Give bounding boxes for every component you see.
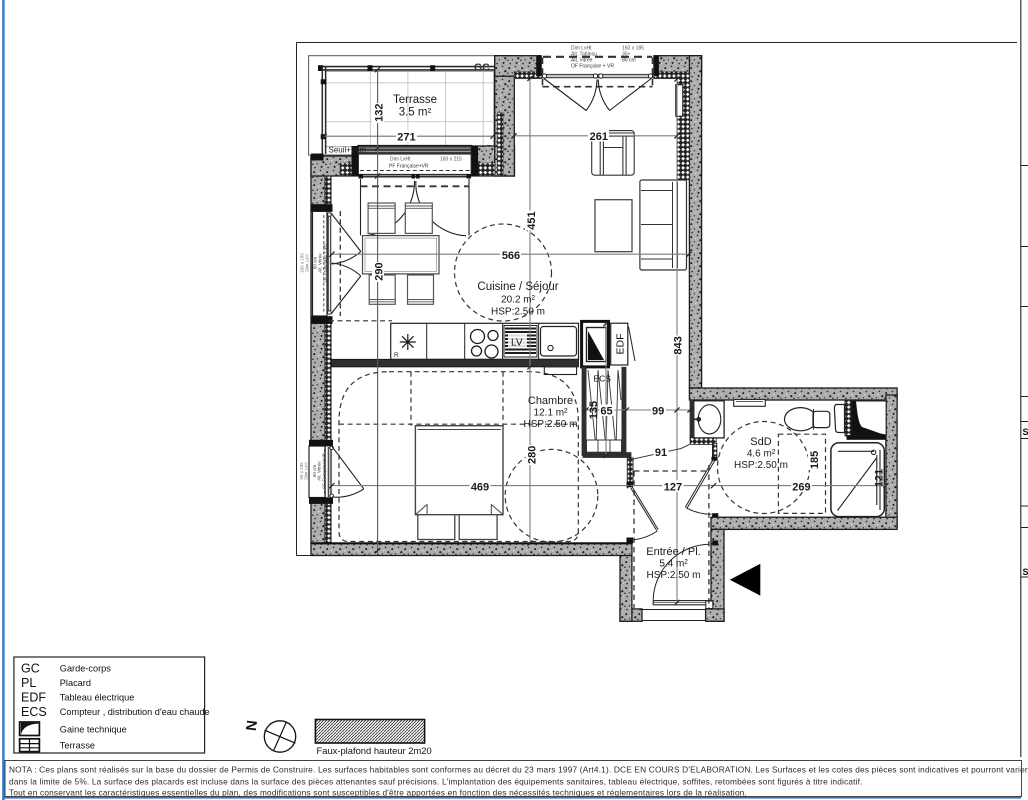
svg-text:843: 843 bbox=[673, 336, 685, 354]
svg-text:135: 135 bbox=[588, 401, 600, 419]
svg-text:127: 127 bbox=[664, 481, 682, 493]
svg-text:269: 269 bbox=[792, 481, 810, 493]
svg-text:R: R bbox=[394, 352, 399, 359]
svg-text:4.6 m²: 4.6 m² bbox=[747, 449, 776, 460]
svg-text:Terrasse: Terrasse bbox=[393, 94, 437, 106]
svg-text:LV: LV bbox=[511, 338, 523, 349]
svg-text:Placard: Placard bbox=[60, 678, 91, 688]
svg-text:469: 469 bbox=[471, 481, 489, 493]
svg-text:OF Française+VR: OF Française+VR bbox=[322, 452, 327, 489]
svg-text:dans la limite de 5%. La surfa: dans la limite de 5%. La surface des pla… bbox=[9, 777, 863, 787]
svg-text:99: 99 bbox=[652, 406, 664, 418]
svg-text:Seuil+2cm: Seuil+2cm bbox=[329, 146, 367, 155]
svg-text:Dim LxHt: Dim LxHt bbox=[390, 157, 411, 163]
svg-text:Dim LxH: Dim LxH bbox=[305, 254, 310, 271]
svg-text:HSP:2.50 m: HSP:2.50 m bbox=[524, 419, 578, 430]
svg-text:132: 132 bbox=[374, 104, 386, 122]
svg-text:280: 280 bbox=[526, 446, 538, 464]
svg-text:Faux-plafond hauteur 2m20: Faux-plafond hauteur 2m20 bbox=[317, 745, 432, 756]
svg-text:271: 271 bbox=[397, 132, 415, 144]
svg-text:566: 566 bbox=[502, 250, 520, 262]
svg-text:80 cm: 80 cm bbox=[622, 58, 636, 64]
svg-text:PF Française+VR: PF Française+VR bbox=[389, 164, 429, 170]
svg-text:20.2 m²: 20.2 m² bbox=[501, 294, 536, 305]
svg-text:HSP:2.50 m: HSP:2.50 m bbox=[647, 570, 701, 581]
svg-text:Chambre: Chambre bbox=[528, 395, 573, 407]
svg-text:GC: GC bbox=[21, 662, 40, 676]
svg-text:Garde-corps: Garde-corps bbox=[60, 664, 111, 674]
svg-text:ECS: ECS bbox=[594, 374, 612, 384]
svg-text:EDF: EDF bbox=[21, 691, 46, 705]
svg-text:S: S bbox=[1023, 427, 1028, 437]
svg-text:451: 451 bbox=[526, 211, 538, 229]
svg-text:OF Française + VR: OF Française + VR bbox=[571, 64, 614, 70]
svg-text:160 x 215: 160 x 215 bbox=[440, 157, 462, 163]
svg-text:185: 185 bbox=[809, 451, 821, 469]
svg-text:12.1 m²: 12.1 m² bbox=[534, 408, 569, 419]
svg-text:PL: PL bbox=[21, 676, 36, 690]
svg-text:Tout en conservant les caracté: Tout en conservant les caractéristiques … bbox=[9, 788, 747, 798]
svg-text:HSP:2.50 m: HSP:2.50 m bbox=[491, 307, 545, 318]
svg-text:Gaine technique: Gaine technique bbox=[60, 725, 127, 735]
svg-text:OF Française + VR: OF Française + VR bbox=[323, 243, 328, 282]
svg-text:261: 261 bbox=[590, 131, 608, 143]
svg-text:Tableau électrique: Tableau électrique bbox=[60, 693, 135, 703]
svg-text:Terrasse: Terrasse bbox=[60, 741, 95, 751]
svg-text:290: 290 bbox=[374, 262, 386, 280]
svg-text:ECS: ECS bbox=[21, 705, 47, 719]
svg-text:S: S bbox=[1023, 567, 1028, 577]
svg-text:65: 65 bbox=[600, 406, 612, 418]
svg-text:Entrée / Pl.: Entrée / Pl. bbox=[646, 546, 700, 558]
svg-text:HSP:2.50 m: HSP:2.50 m bbox=[734, 460, 788, 471]
svg-text:Compteur , distribution d'eau: Compteur , distribution d'eau chaude bbox=[60, 707, 210, 717]
svg-text:5.4 m²: 5.4 m² bbox=[659, 559, 688, 570]
svg-text:91: 91 bbox=[655, 447, 667, 459]
svg-text:N: N bbox=[242, 719, 259, 731]
svg-text:EDF: EDF bbox=[615, 334, 627, 355]
svg-text:Cuisine / Séjour: Cuisine / Séjour bbox=[477, 281, 558, 293]
svg-text:NOTA : Ces plans sont réalisés: NOTA : Ces plans sont réalisés sur la ba… bbox=[9, 765, 1028, 775]
svg-text:3.5 m²: 3.5 m² bbox=[399, 107, 432, 119]
svg-text:SdD: SdD bbox=[750, 436, 771, 448]
svg-text:121: 121 bbox=[873, 469, 885, 487]
svg-text:GC: GC bbox=[474, 62, 490, 74]
svg-text:Dim LxH: Dim LxH bbox=[304, 462, 309, 479]
